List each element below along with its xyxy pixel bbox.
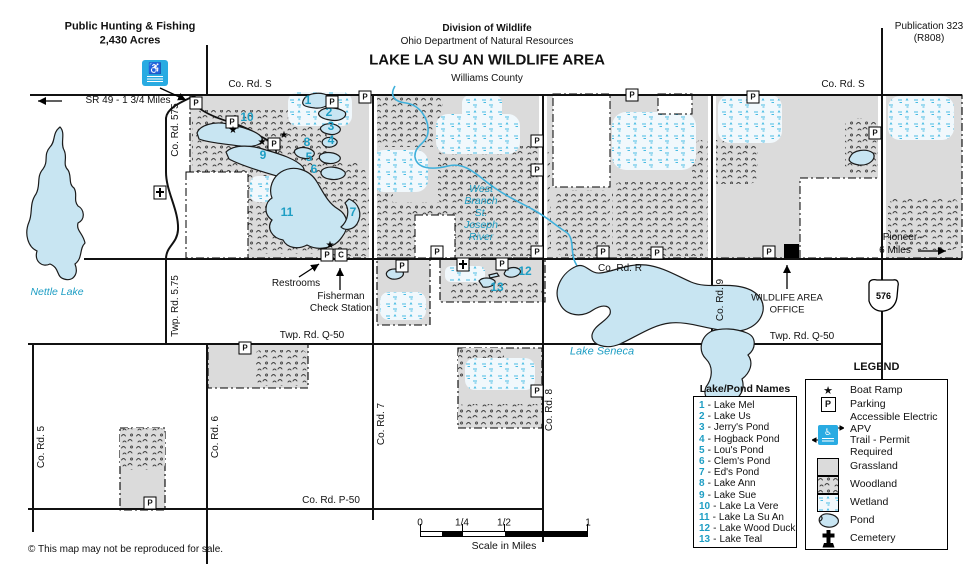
svg-text:♿: ♿ [824, 428, 832, 438]
pond-list-item: 13-Lake Teal [699, 534, 796, 545]
lake-marker-4: 4 [328, 134, 335, 146]
sr49-label: SR 49 - 1 3/4 Miles [85, 96, 170, 106]
pioneer-label-line1: Pioneer - [883, 233, 924, 243]
co-rd-s-label-west: Co. Rd. S [228, 80, 271, 90]
parking-marker: P [651, 247, 664, 260]
hunting-acres-line2: 2,430 Acres [100, 36, 161, 47]
parking-marker: P [531, 385, 544, 398]
legend-panel: ★ Boat Ramp P Parking ♿ Accessible Elect… [805, 379, 948, 550]
pond-list-item: 12-Lake Wood Duck [699, 523, 796, 534]
pond-swatch [812, 512, 844, 530]
lake-marker-10: 10 [240, 111, 253, 123]
co-rd-5-label: Co. Rd. 5 [37, 426, 47, 468]
river-label-line4: Joseph [464, 220, 498, 231]
legend-row-woodland: Woodland [812, 476, 943, 494]
lous-pond-shape [319, 153, 340, 164]
co-rd-p50-label: Co. Rd. P-50 [302, 496, 360, 506]
lake-marker-13: 13 [490, 281, 503, 293]
pond-list-item: 5-Lou's Pond [699, 445, 796, 456]
legend-row-apv: ♿ Accessible Electric APV Trail - Permit… [812, 412, 943, 458]
boat-ramp-icon: ★ [812, 384, 844, 397]
parking-marker: P [431, 246, 444, 259]
legend-row-boat-ramp: ★ Boat Ramp [812, 384, 943, 397]
co-rd-7-label: Co. Rd. 7 [377, 403, 387, 445]
parking-marker: P [597, 246, 610, 259]
lake-marker-3: 3 [328, 120, 335, 132]
twp-rd-q50-label-east: Twp. Rd. Q-50 [770, 332, 834, 342]
lake-seneca-label: Lake Seneca [570, 347, 634, 358]
cemetery-icon [154, 186, 166, 199]
grassland-swatch [817, 458, 839, 476]
parking-icon: P [821, 397, 836, 412]
parking-marker: P [190, 97, 203, 110]
pond-list-item: 1-Lake Mel [699, 400, 796, 411]
wildlife-office-building [784, 244, 799, 258]
parking-marker: P [496, 258, 509, 271]
lake-marker-9: 9 [260, 149, 267, 161]
lake-marker-8: 8 [304, 136, 311, 148]
parking-marker: P [531, 164, 544, 177]
publication-line2: (R808) [914, 34, 945, 44]
parking-marker: P [747, 91, 760, 104]
pond-list-item: 6-Clem's Pond [699, 456, 796, 467]
office-label-line2: OFFICE [770, 305, 805, 315]
route-576-shield: 576 [869, 280, 898, 312]
pond-list-item: 11-Lake La Su An [699, 512, 796, 523]
co-rd-s-label-east: Co. Rd. S [821, 80, 864, 90]
nettle-lake-label: Nettle Lake [30, 287, 83, 298]
scale-tick-mark [587, 524, 588, 531]
check-station-marker: C [335, 249, 348, 262]
scale-tick-mark [462, 524, 463, 531]
parking-marker: P [531, 135, 544, 148]
wheelchair-icon: ♿ [148, 64, 162, 75]
hunting-acres-line1: Public Hunting & Fishing [65, 22, 196, 33]
parking-marker: P [359, 91, 372, 104]
legend-row-grassland: Grassland [812, 458, 943, 476]
pond-list-title: Lake/Pond Names [693, 383, 797, 395]
parking-marker: P [396, 260, 409, 273]
co-rd-r-label: Co. Rd. R [598, 264, 642, 274]
scale-tick-mark [420, 524, 421, 531]
lake-marker-1: 1 [305, 94, 312, 106]
cemetery-icon [812, 530, 844, 548]
clems-pond-shape [321, 167, 345, 179]
twp-rd-q50-label-west: Twp. Rd. Q-50 [280, 331, 344, 341]
nettle-lake-shape [27, 127, 85, 280]
pond-list-item: 2-Lake Us [699, 411, 796, 422]
pond-list-item: 8-Lake Ann [699, 478, 796, 489]
publication-line1: Publication 323 [895, 22, 963, 32]
river-label-line1: West [469, 184, 493, 195]
pond-list-item: 7-Ed's Pond [699, 467, 796, 478]
parking-marker: P [144, 497, 157, 510]
river-label-line2: Branch [464, 196, 497, 207]
division-title: Division of Wildlife [442, 24, 531, 34]
parking-marker: P [626, 89, 639, 102]
lake-marker-11: 11 [281, 206, 294, 218]
pond-list-item: 3-Jerry's Pond [699, 422, 796, 433]
legend-title: LEGEND [805, 361, 948, 373]
co-rd-9-label: Co. Rd. 9 [716, 279, 726, 321]
county-label: Williams County [451, 74, 523, 84]
river-label-line3: St. [475, 208, 488, 219]
pond-list-item: 4-Hogback Pond [699, 434, 796, 445]
pond-list-item: 10-Lake La Vere [699, 501, 796, 512]
boat-ramp-icon: ★ [258, 138, 267, 148]
apv-sign-text-lines [147, 76, 163, 82]
co-rd-575-label: Co. Rd. 575 [171, 103, 181, 156]
parking-marker: P [239, 342, 252, 355]
legend-row-cemetery: Cemetery [812, 530, 943, 548]
boat-ramp-icon: ★ [280, 131, 289, 141]
route-576-number: 576 [876, 291, 891, 301]
pioneer-label-line2: 6 Miles [879, 246, 911, 256]
restrooms-arrow-line [299, 264, 319, 277]
parking-marker: P [531, 246, 544, 259]
legend-row-pond: Pond [812, 512, 943, 530]
twp-rd-5-75-label: Twp. Rd. 5.75 [171, 275, 181, 337]
woodland-swatch [812, 476, 844, 494]
restrooms-label: Restrooms [272, 279, 320, 289]
river-label-line5: River [469, 232, 494, 243]
department-title: Ohio Department of Natural Resources [401, 37, 574, 47]
pond-list-panel: 1-Lake Mel 2-Lake Us 3-Jerry's Pond 4-Ho… [693, 396, 797, 548]
legend-row-parking: P Parking [812, 397, 943, 412]
cemetery-icon [457, 258, 469, 271]
check-station-label-line1: Fisherman [317, 292, 364, 302]
legend-row-wetland: Wetland [812, 494, 943, 512]
scale-tick-mark [504, 524, 505, 531]
parking-marker: P [869, 127, 882, 140]
wetland-swatch [812, 494, 844, 512]
boat-ramp-icon: ★ [229, 126, 238, 136]
lake-marker-7: 7 [350, 206, 357, 218]
copyright-notice: © This map may not be reproduced for sal… [28, 544, 223, 555]
apv-sign-icon: ♿ [812, 422, 844, 448]
co-rd-8-label: Co. Rd. 8 [545, 389, 555, 431]
co-rd-6-label: Co. Rd. 6 [211, 416, 221, 458]
parking-marker: P [326, 96, 339, 109]
lake-marker-12: 12 [518, 265, 531, 277]
apv-trail-sign: ♿ [142, 60, 168, 86]
parking-marker: P [763, 246, 776, 259]
boat-ramp-icon: ★ [326, 241, 335, 251]
map-canvas: 576 Public Hunting & Fishing 2,430 Acres… [0, 0, 972, 564]
pond-list-item: 9-Lake Sue [699, 490, 796, 501]
scale-bar [420, 531, 588, 537]
lake-marker-6: 6 [311, 163, 318, 175]
office-label-line1: WILDLIFE AREA [751, 293, 823, 303]
check-station-label-line2: Check Station [310, 304, 372, 314]
scale-caption: Scale in Miles [472, 540, 537, 552]
page-title: LAKE LA SU AN WILDLIFE AREA [369, 53, 605, 68]
